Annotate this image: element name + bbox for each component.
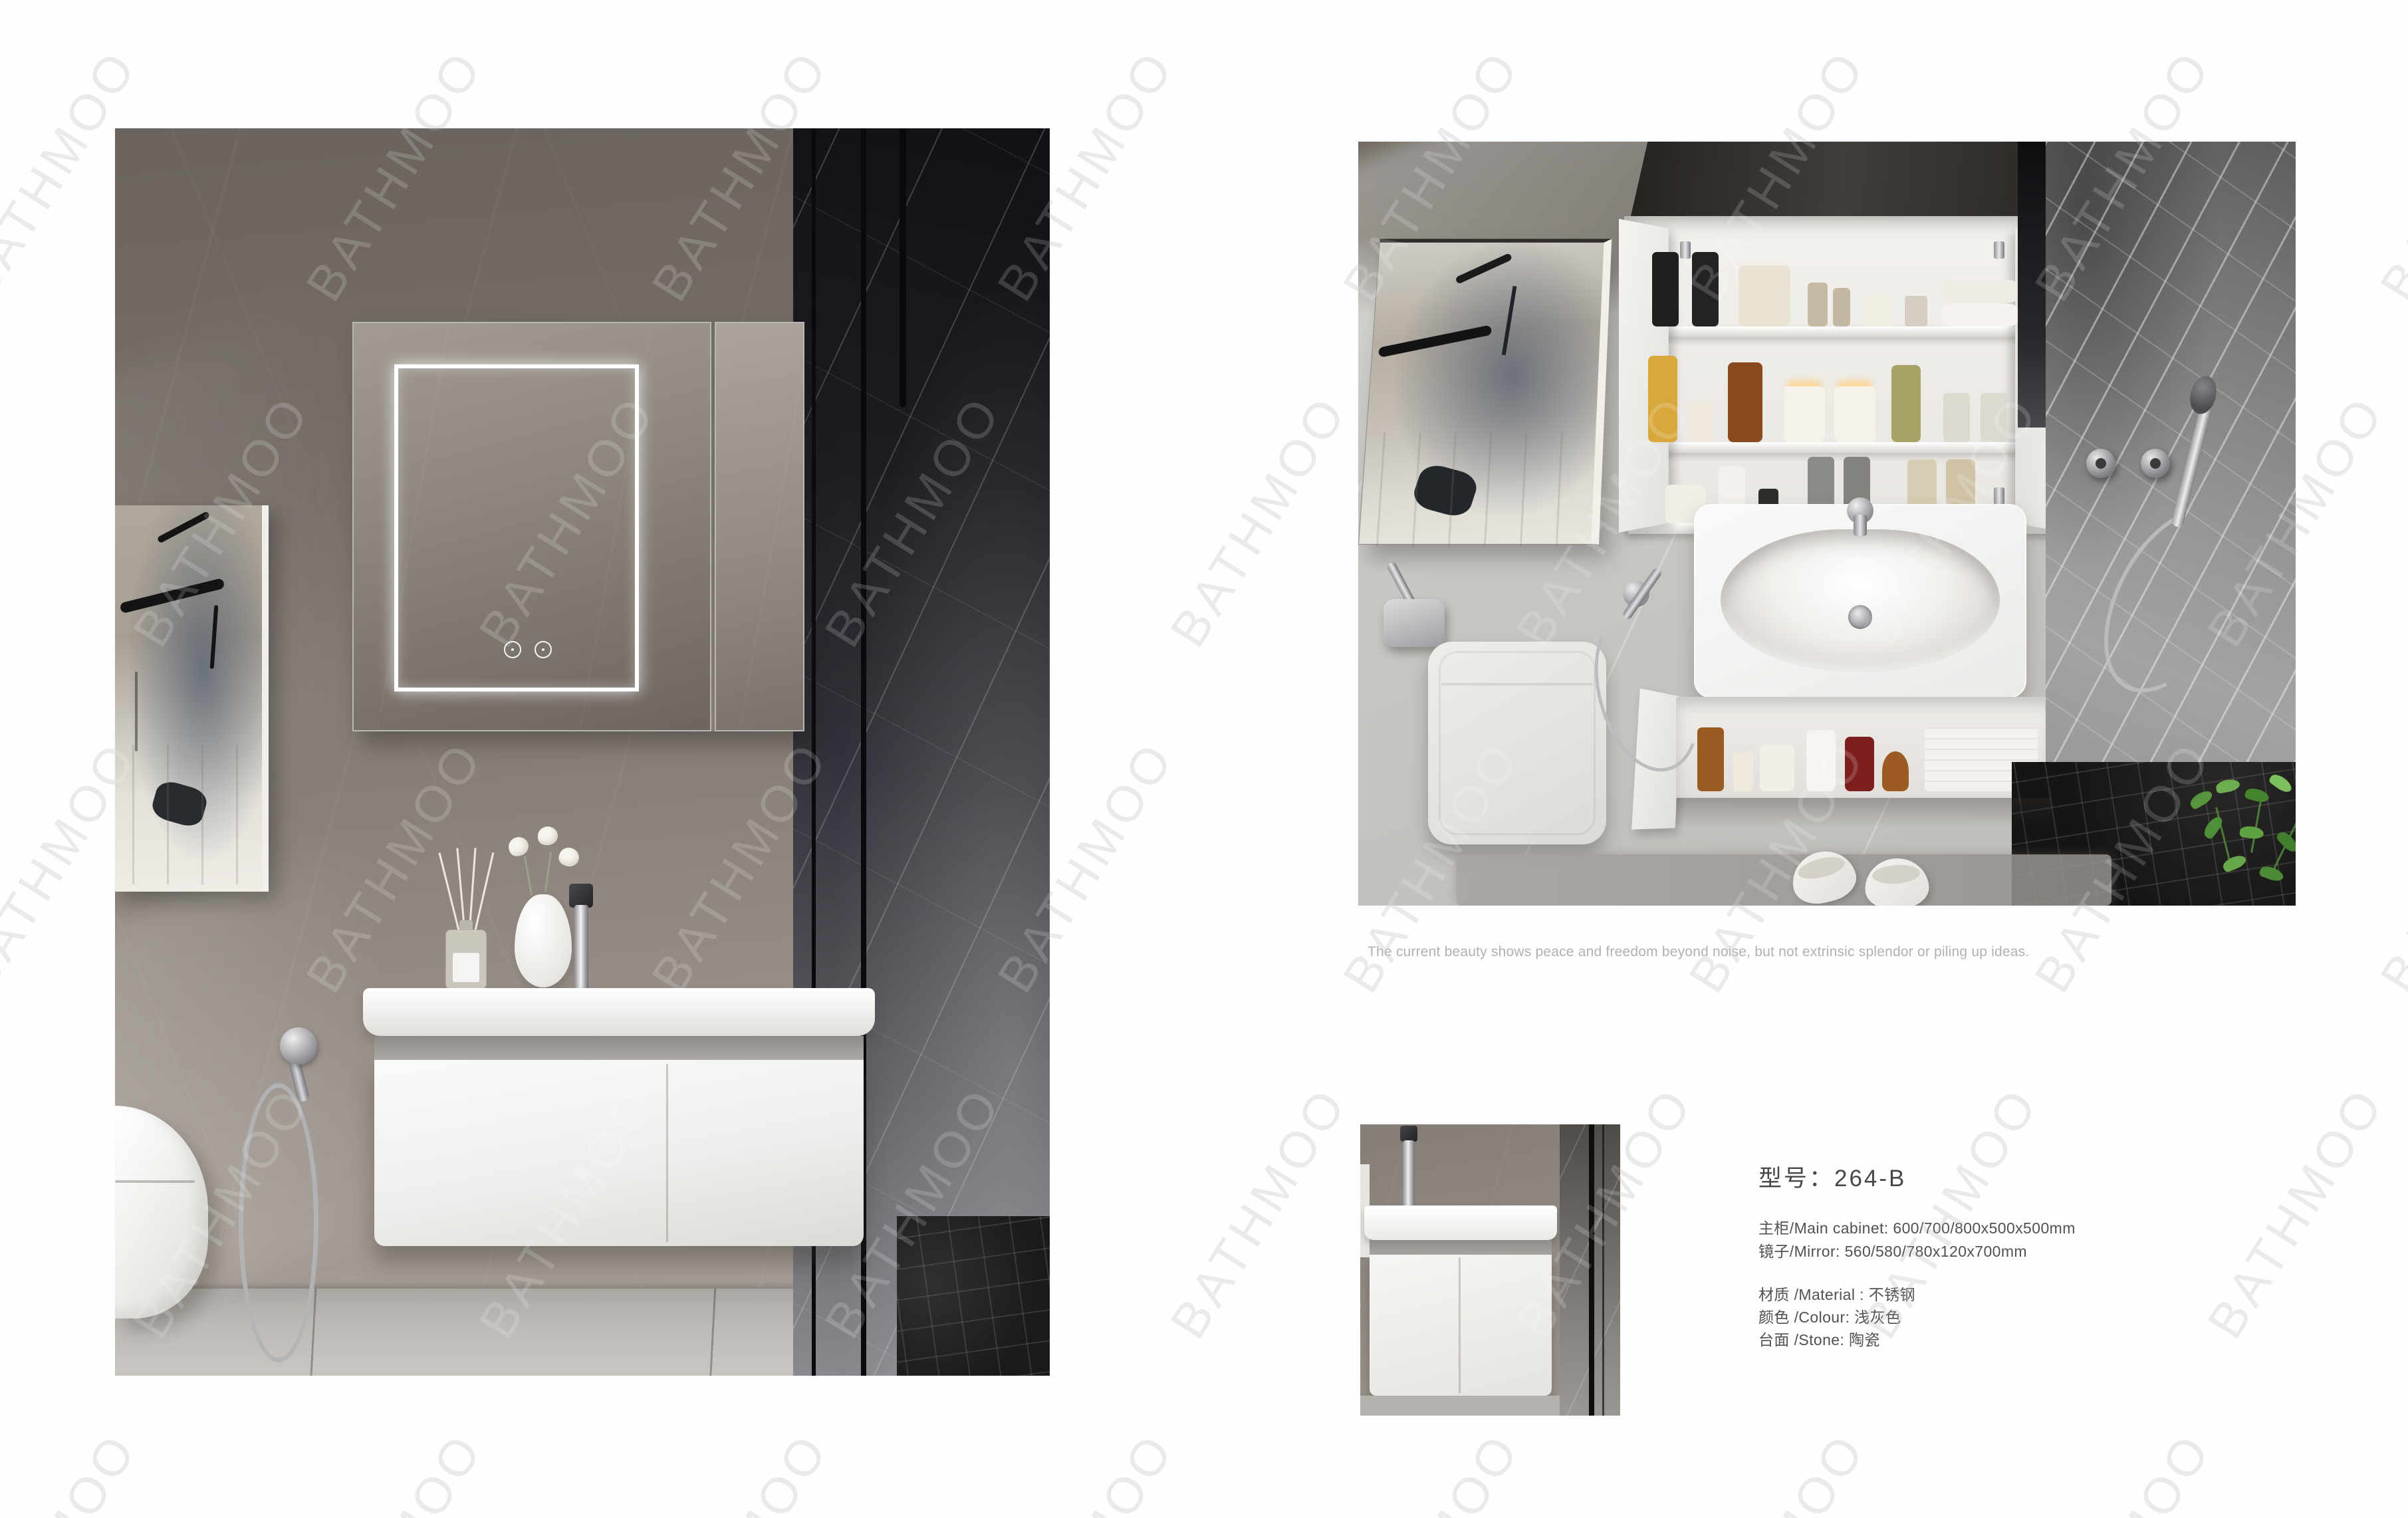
leaf [2239,825,2264,840]
glass-jar [1833,288,1850,326]
paint-drips [115,745,262,884]
ceramic-basin [1694,504,2026,698]
watermark-text: BATHMOO [2369,1422,2408,1518]
slipper-strap [1871,864,1921,886]
cabinet-top-surface [1631,142,2053,216]
led-light-frame [394,364,639,692]
leaf [2188,788,2215,811]
mirror-door-left [352,322,711,731]
watermark-text: BATHMOO [2024,1422,2223,1518]
leaf [2244,786,2270,804]
shelf-items-row [1633,233,2050,326]
wall-hung-toilet-top-view [1428,642,1606,844]
spec-line-main-cabinet: 主柜/Main cabinet: 600/700/800x500x500mm [1758,1217,2076,1240]
detail-thumbnail-photo [1360,1124,1620,1416]
watermark-text: BATHMOO [1159,385,1359,657]
plant-stem [2250,793,2263,852]
ceramic-countertop [1364,1205,1557,1240]
counter-recess [1370,1240,1552,1255]
model-number: 型号：264-B [1758,1160,1906,1194]
watermark-text: BATHMOO [1332,1422,1532,1518]
watermark-text: BATHMOO [1159,385,1359,657]
swab-cup [1905,296,1927,326]
paint-drips [1359,432,1596,547]
plant-stem [2215,807,2232,866]
vanity-cabinet [374,1060,864,1246]
basin-bowl [1721,529,2000,672]
green-plant [2176,780,2296,906]
reed-diffuser-bottle [445,930,487,989]
black-pump-bottle [1652,252,1679,326]
red-bottle [1845,737,1874,791]
watermark-text: BATHMOO [2369,731,2408,1003]
spec-line-material: 材质 /Material : 不锈钢 [1758,1283,1915,1306]
watermark-text: BATHMOO [1678,1422,1877,1518]
watermark-text: BATHMOO [987,1422,1186,1518]
spec-line-stone: 台面 /Stone: 陶瓷 [1758,1328,1915,1351]
drain [1848,605,1872,629]
rolled-towel [1941,304,2020,326]
watermark-text: BATHMOO [0,1422,149,1518]
faucet [574,905,588,990]
watermark-text: BATHMOO [2197,1076,2396,1348]
paint-stroke [157,511,211,543]
watermark-text: BATHMOO [2024,1422,2223,1518]
watermark-text: BATHMOO [641,1422,840,1518]
watermark-text: BATHMOO [987,1422,1186,1518]
paint-stroke [135,672,138,751]
glass-frame-line [1589,1124,1594,1416]
flower-vase [515,894,572,987]
mosaic-pattern [897,1216,1050,1376]
bubble-candle [1865,296,1891,326]
watermark-text: BATHMOO [2197,1076,2396,1348]
paint-stroke [210,605,219,669]
faucet-handle [1400,1126,1417,1142]
abstract-painting [115,505,269,892]
handheld-shower-head [280,1027,317,1065]
white-pump-bottle [1806,730,1836,791]
shower-valve-knob [2086,449,2115,478]
body-oil-bottle [1648,356,1677,442]
toilet-paper-holder [1384,599,1445,647]
watermark-text: BATHMOO [1678,1422,1877,1518]
floor-rug [1457,854,2111,906]
ceramic-countertop [363,988,875,1036]
paint-stroke [1378,325,1493,358]
defog-touch-icon [535,641,552,658]
mini-diffuser [1733,753,1753,791]
counter-recess [374,1036,864,1060]
open-storage-cabinet [1624,142,2060,534]
cabinet-shadow [1676,798,2052,827]
abstract-painting [1358,239,1612,545]
basin-faucet [1844,497,1876,536]
watermark-text: BATHMOO [2369,1422,2408,1518]
watermark-text: BATHMOO [641,1422,840,1518]
glass-frame-line [1602,1124,1604,1416]
watermark-text: BATHMOO [2369,39,2408,311]
dark-marble-edge [2018,142,2046,428]
paint-stroke [1502,286,1517,355]
shower-valve-knob [2141,449,2170,478]
photo-caption: The current beauty shows peace and freed… [1368,944,2032,960]
paint-stroke [119,578,225,614]
spec-dimensions: 主柜/Main cabinet: 600/700/800x500x500mm 镜… [1758,1217,2076,1263]
spec-line-colour: 颜色 /Colour: 浅灰色 [1758,1306,1915,1328]
leaf [2258,864,2285,883]
vanity-cabinet-doors [1370,1255,1552,1396]
paint-stroke [1455,253,1512,285]
under-sink-items [1685,703,2044,791]
shower-hose [239,1083,318,1362]
watermark-text: BATHMOO [1159,1076,1359,1348]
leaf [2221,853,2248,873]
left-product-photo [115,128,1050,1376]
spec-materials: 材质 /Material : 不锈钢 颜色 /Colour: 浅灰色 台面 /S… [1758,1283,1915,1351]
watermark-text: BATHMOO [295,1422,495,1518]
shelf-board [1628,326,2056,337]
leaf [2215,778,2241,794]
faucet-handle [569,884,593,908]
right-product-photo [1358,142,2296,906]
watermark-text: BATHMOO [0,1422,149,1518]
mirror-door-right [715,322,804,731]
cream-jar-stack [1739,265,1790,326]
watermark-text: BATHMOO [2369,731,2408,1003]
amber-bottle [1697,727,1724,791]
catalog-page: BATHMOOBATHMOOBATHMOOBATHMOOBATHMOOBATHM… [0,0,2408,1518]
watermark-text: BATHMOO [1332,1422,1532,1518]
candle [1760,745,1794,791]
rolled-towel [1941,280,2020,303]
amber-flask [1882,751,1909,791]
spec-line-mirror: 镜子/Mirror: 560/580/780x120x700mm [1758,1240,2076,1263]
watermark-text: BATHMOO [295,1422,495,1518]
shower-door-handle [900,128,906,408]
watermark-text: BATHMOO [1159,1076,1359,1348]
black-pump-bottle [1692,252,1719,326]
shelf-items-row [1633,349,2050,442]
flower [538,826,558,845]
power-touch-icon [504,641,521,658]
faucet-spout [1854,515,1867,536]
toilet-lid-outline [1439,651,1596,835]
led-mirror-cabinet [352,322,804,731]
mosaic-floor-corner [897,1216,1050,1376]
glass-jar [1808,283,1828,326]
faucet [1403,1140,1415,1207]
watermark-text: BATHMOO [2369,39,2408,311]
